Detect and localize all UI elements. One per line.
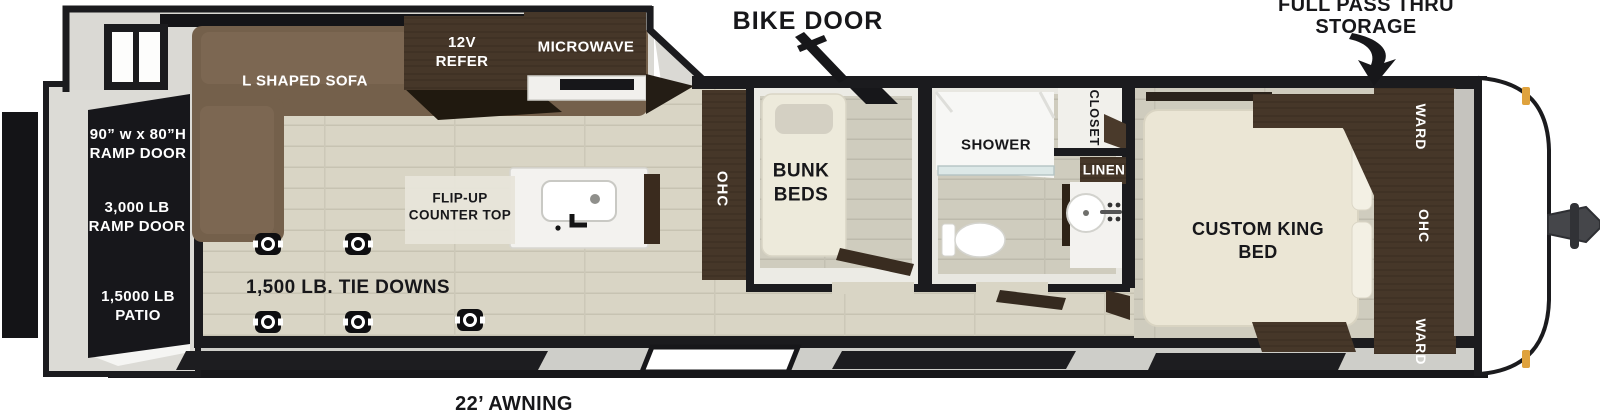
tie-downs-label: 1,500 LB. TIE DOWNS	[246, 276, 450, 300]
tie-down-icon	[343, 311, 373, 333]
front-ohc-label: OHC	[1414, 209, 1432, 243]
marker-light	[1522, 350, 1530, 368]
bed-cabinet-bottom	[1252, 322, 1356, 352]
cooktop	[560, 79, 634, 90]
tie-down-icon	[343, 233, 373, 255]
tie-down-icon	[253, 311, 283, 333]
microwave-label: MICROWAVE	[538, 37, 635, 56]
king-bed-label: CUSTOM KING BED	[1192, 218, 1324, 264]
shower-glass	[938, 166, 1054, 175]
awning-label: 22’ AWNING	[455, 392, 573, 415]
ramp-capacity-label: 3,000 LB RAMP DOOR	[89, 198, 186, 236]
bunk-door-opening	[832, 282, 914, 294]
bike-door-label: BIKE DOOR	[733, 5, 884, 37]
hitch-coupler	[1548, 203, 1600, 249]
kitchen-island	[510, 168, 660, 248]
bike-door-pointer	[795, 32, 848, 83]
sink	[542, 181, 616, 221]
galley-ohc-label: OHC	[712, 171, 731, 207]
tie-down-icon	[455, 309, 485, 331]
tie-down-icon	[253, 233, 283, 255]
refer-label: 12V REFER	[436, 33, 489, 71]
bunk-pillow	[775, 104, 833, 134]
closet-label: CLOSET	[1086, 90, 1102, 147]
shower-label: SHOWER	[961, 135, 1031, 154]
linen-label: LINEN	[1083, 161, 1126, 178]
patio-deck	[2, 112, 38, 338]
ward-top-label: WARD	[1411, 104, 1429, 151]
floorplan-canvas: BIKE DOOR FULL PASS THRU STORAGE 22’ AWN…	[0, 0, 1600, 415]
toilet	[955, 223, 1005, 257]
flip-up-label: FLIP-UP COUNTER TOP	[409, 190, 511, 225]
front-cap	[1480, 78, 1549, 374]
marker-light	[1522, 87, 1530, 105]
ramp-size-label: 90” w x 80”H RAMP DOOR	[90, 125, 187, 163]
sofa-label: L SHAPED SOFA	[242, 71, 368, 90]
patio-label: 1,5000 LB PATIO	[101, 287, 175, 325]
storage-label: FULL PASS THRU STORAGE	[1278, 0, 1454, 38]
ward-bottom-label: WARD	[1411, 319, 1429, 366]
pillow	[1352, 222, 1372, 298]
bunk-beds-label: BUNK BEDS	[773, 160, 830, 209]
entry-door	[642, 347, 798, 372]
